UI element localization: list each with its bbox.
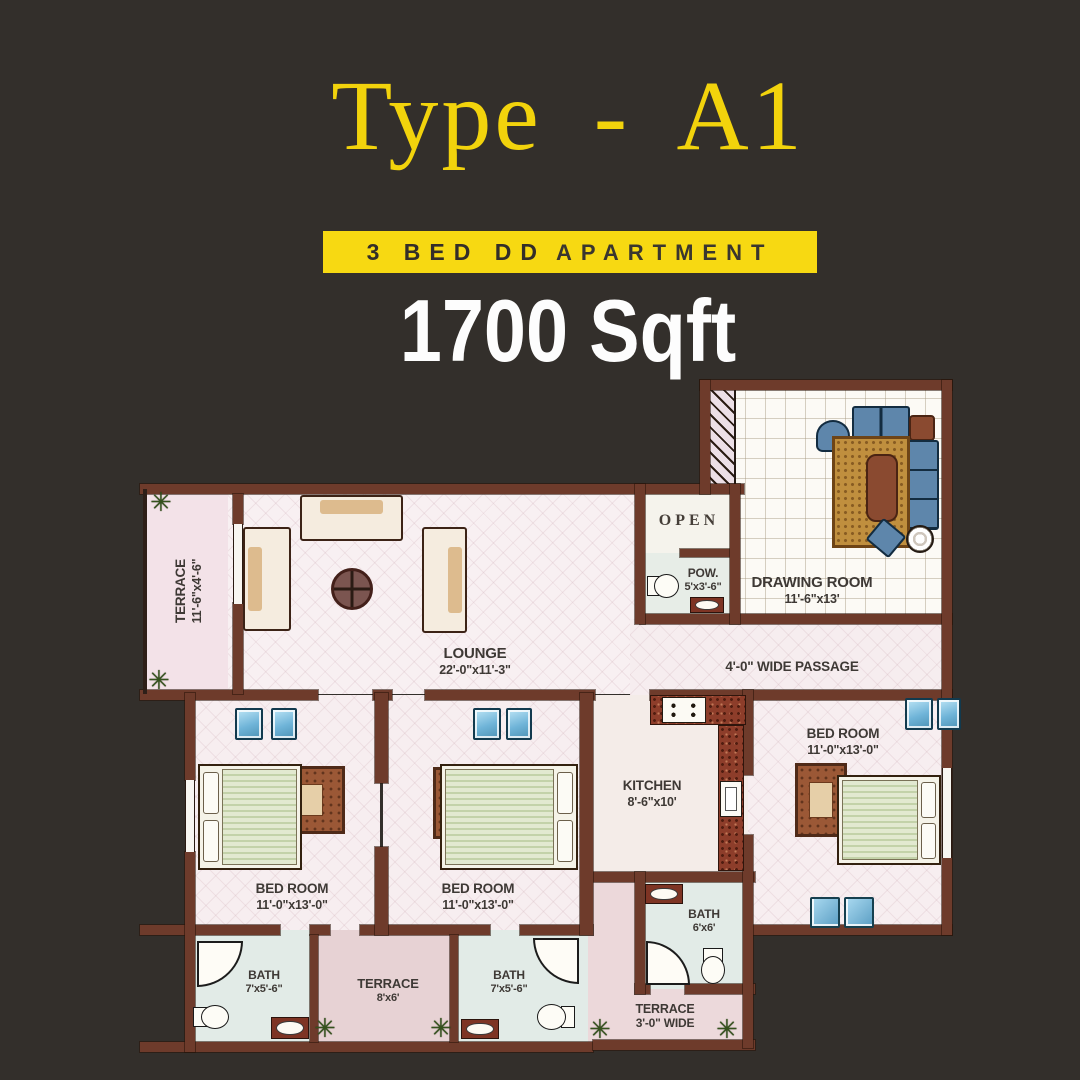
window-seat xyxy=(506,708,532,740)
poster-background: Type - A1 3 BED DDAPARTMENT 1700 Sqft xyxy=(0,0,1080,1080)
sink xyxy=(645,884,683,904)
wall-segment xyxy=(140,484,744,494)
toilet xyxy=(701,948,723,982)
page-title: Type - A1 xyxy=(28,58,1080,173)
room-name: BED ROOM xyxy=(202,881,382,897)
room-dims: 7'x5'-6" xyxy=(459,983,559,996)
sofa xyxy=(243,527,291,631)
wall-segment xyxy=(635,484,645,624)
room-dims: 11'-6"x4'-6" xyxy=(189,506,205,676)
room-dims: 22'-0"x11'-3" xyxy=(385,662,565,678)
pillow xyxy=(921,823,936,859)
bed xyxy=(440,764,578,870)
room-label-terrace-left: TERRACE 11'-6"x4'-6" xyxy=(173,506,207,676)
area-label: 1700 Sqft xyxy=(104,280,1033,382)
round-lamp xyxy=(906,525,934,553)
mattress xyxy=(445,769,554,865)
wall-segment xyxy=(233,603,243,694)
banner-rest-text: APARTMENT xyxy=(556,240,773,265)
bed xyxy=(837,775,941,865)
passage-floor xyxy=(630,619,947,695)
room-name: TERRACE xyxy=(173,506,189,676)
wall-segment xyxy=(680,549,732,557)
plant-icon: ✳ xyxy=(314,1016,336,1042)
stove xyxy=(662,697,706,723)
sink xyxy=(690,597,724,613)
sink xyxy=(461,1019,499,1039)
room-name: 4'-0" WIDE PASSAGE xyxy=(687,659,897,675)
wall-segment xyxy=(700,380,952,390)
sofa xyxy=(300,495,403,541)
wall-segment xyxy=(580,693,593,935)
room-label-lounge: LOUNGE 22'-0"x11'-3" xyxy=(385,646,565,678)
pillow xyxy=(203,772,219,814)
chair xyxy=(844,897,874,928)
room-dims: 8'x6' xyxy=(328,992,448,1005)
room-label-bedroom1: BED ROOM 11'-0"x13'-0" xyxy=(202,881,382,913)
banner-bold-text: 3 BED DD xyxy=(367,239,546,265)
wall-segment xyxy=(425,690,595,700)
room-label-kitchen: KITCHEN 8'-6"x10' xyxy=(572,778,732,810)
wall-segment xyxy=(233,494,243,524)
room-name: BATH xyxy=(654,906,754,922)
room-name: KITCHEN xyxy=(572,778,732,794)
apartment-type-banner: 3 BED DDAPARTMENT xyxy=(323,231,817,273)
room-name: TERRACE xyxy=(328,976,448,992)
pillow xyxy=(921,782,936,818)
window-seat xyxy=(937,698,961,730)
side-table xyxy=(909,415,935,441)
mattress xyxy=(842,780,918,860)
coffee-table xyxy=(866,454,898,522)
sink xyxy=(271,1017,309,1039)
room-label-bedroom2: BED ROOM 11'-0"x13'-0" xyxy=(388,881,568,913)
room-name: OPEN xyxy=(648,513,730,529)
sofa xyxy=(422,527,467,633)
wall-segment xyxy=(593,872,755,882)
terrace-edge-line xyxy=(143,489,147,694)
wall-segment xyxy=(640,614,952,624)
room-dims: 11'-0"x13'-0" xyxy=(388,897,568,913)
wall-segment xyxy=(310,925,330,935)
sofa xyxy=(905,440,939,530)
room-name: DRAWING ROOM xyxy=(732,575,892,591)
wall-segment xyxy=(635,872,645,994)
room-name: POW. xyxy=(667,565,739,581)
window-seat xyxy=(271,708,297,740)
toilet xyxy=(539,1004,575,1028)
mattress xyxy=(222,769,297,865)
wall-segment xyxy=(700,380,710,494)
wall-segment xyxy=(185,693,195,780)
room-label-drawing-room: DRAWING ROOM 11'-6"x13' xyxy=(732,575,892,607)
pillow xyxy=(557,820,573,862)
pillow xyxy=(557,772,573,814)
room-dims: 5'x3'-6" xyxy=(667,581,739,594)
window-seat xyxy=(473,708,501,740)
room-dims: 8'-6"x10' xyxy=(572,794,732,810)
room-label-bath3: BATH 6'x6' xyxy=(654,906,754,935)
room-label-bath2: BATH 7'x5'-6" xyxy=(459,967,559,996)
window xyxy=(942,768,952,858)
chair xyxy=(810,897,840,928)
room-name: BATH xyxy=(459,967,559,983)
room-name: BED ROOM xyxy=(753,726,933,742)
room-label-terrace-mid: TERRACE 8'x6' xyxy=(328,976,448,1005)
room-dims: 7'x5'-6" xyxy=(214,983,314,996)
room-dims: 11'-6"x13' xyxy=(732,591,892,607)
room-dims: 3'-0" WIDE xyxy=(595,1017,735,1030)
wall-segment xyxy=(140,925,280,935)
room-label-pow: POW. 5'x3'-6" xyxy=(667,565,739,594)
window xyxy=(185,780,195,852)
room-dims: 11'-0"x13'-0" xyxy=(202,897,382,913)
room-name: TERRACE xyxy=(595,1001,735,1017)
passage-label: 4'-0" WIDE PASSAGE xyxy=(687,659,897,675)
room-label-bedroom3: BED ROOM 11'-0"x13'-0" xyxy=(753,726,933,758)
bed xyxy=(198,764,302,870)
room-label-terrace-right: TERRACE 3'-0" WIDE xyxy=(595,1001,735,1030)
room-dims: 11'-0"x13'-0" xyxy=(753,742,933,758)
window xyxy=(233,524,243,604)
plant-icon: ✳ xyxy=(150,490,172,516)
room-name: BED ROOM xyxy=(388,881,568,897)
plant-icon: ✳ xyxy=(430,1016,452,1042)
room-label-bath1: BATH 7'x5'-6" xyxy=(214,967,314,996)
room-dims: 6'x6' xyxy=(654,922,754,935)
window-seat xyxy=(235,708,263,740)
floor-plan: ✳ ✳ ✳ ✳ ✳ ✳ TERRACE 11'-6"x4'-6" LOUNGE … xyxy=(140,378,952,1070)
room-label-open: OPEN xyxy=(648,513,730,529)
plant-icon: ✳ xyxy=(148,668,170,694)
round-table xyxy=(331,568,373,610)
wall-segment xyxy=(375,693,388,783)
pillow xyxy=(203,820,219,862)
wall-segment xyxy=(743,835,753,1048)
toilet xyxy=(193,1005,227,1027)
staircase xyxy=(710,388,736,492)
wall-segment xyxy=(140,1042,593,1052)
room-name: BATH xyxy=(214,967,314,983)
room-name: LOUNGE xyxy=(385,646,565,662)
